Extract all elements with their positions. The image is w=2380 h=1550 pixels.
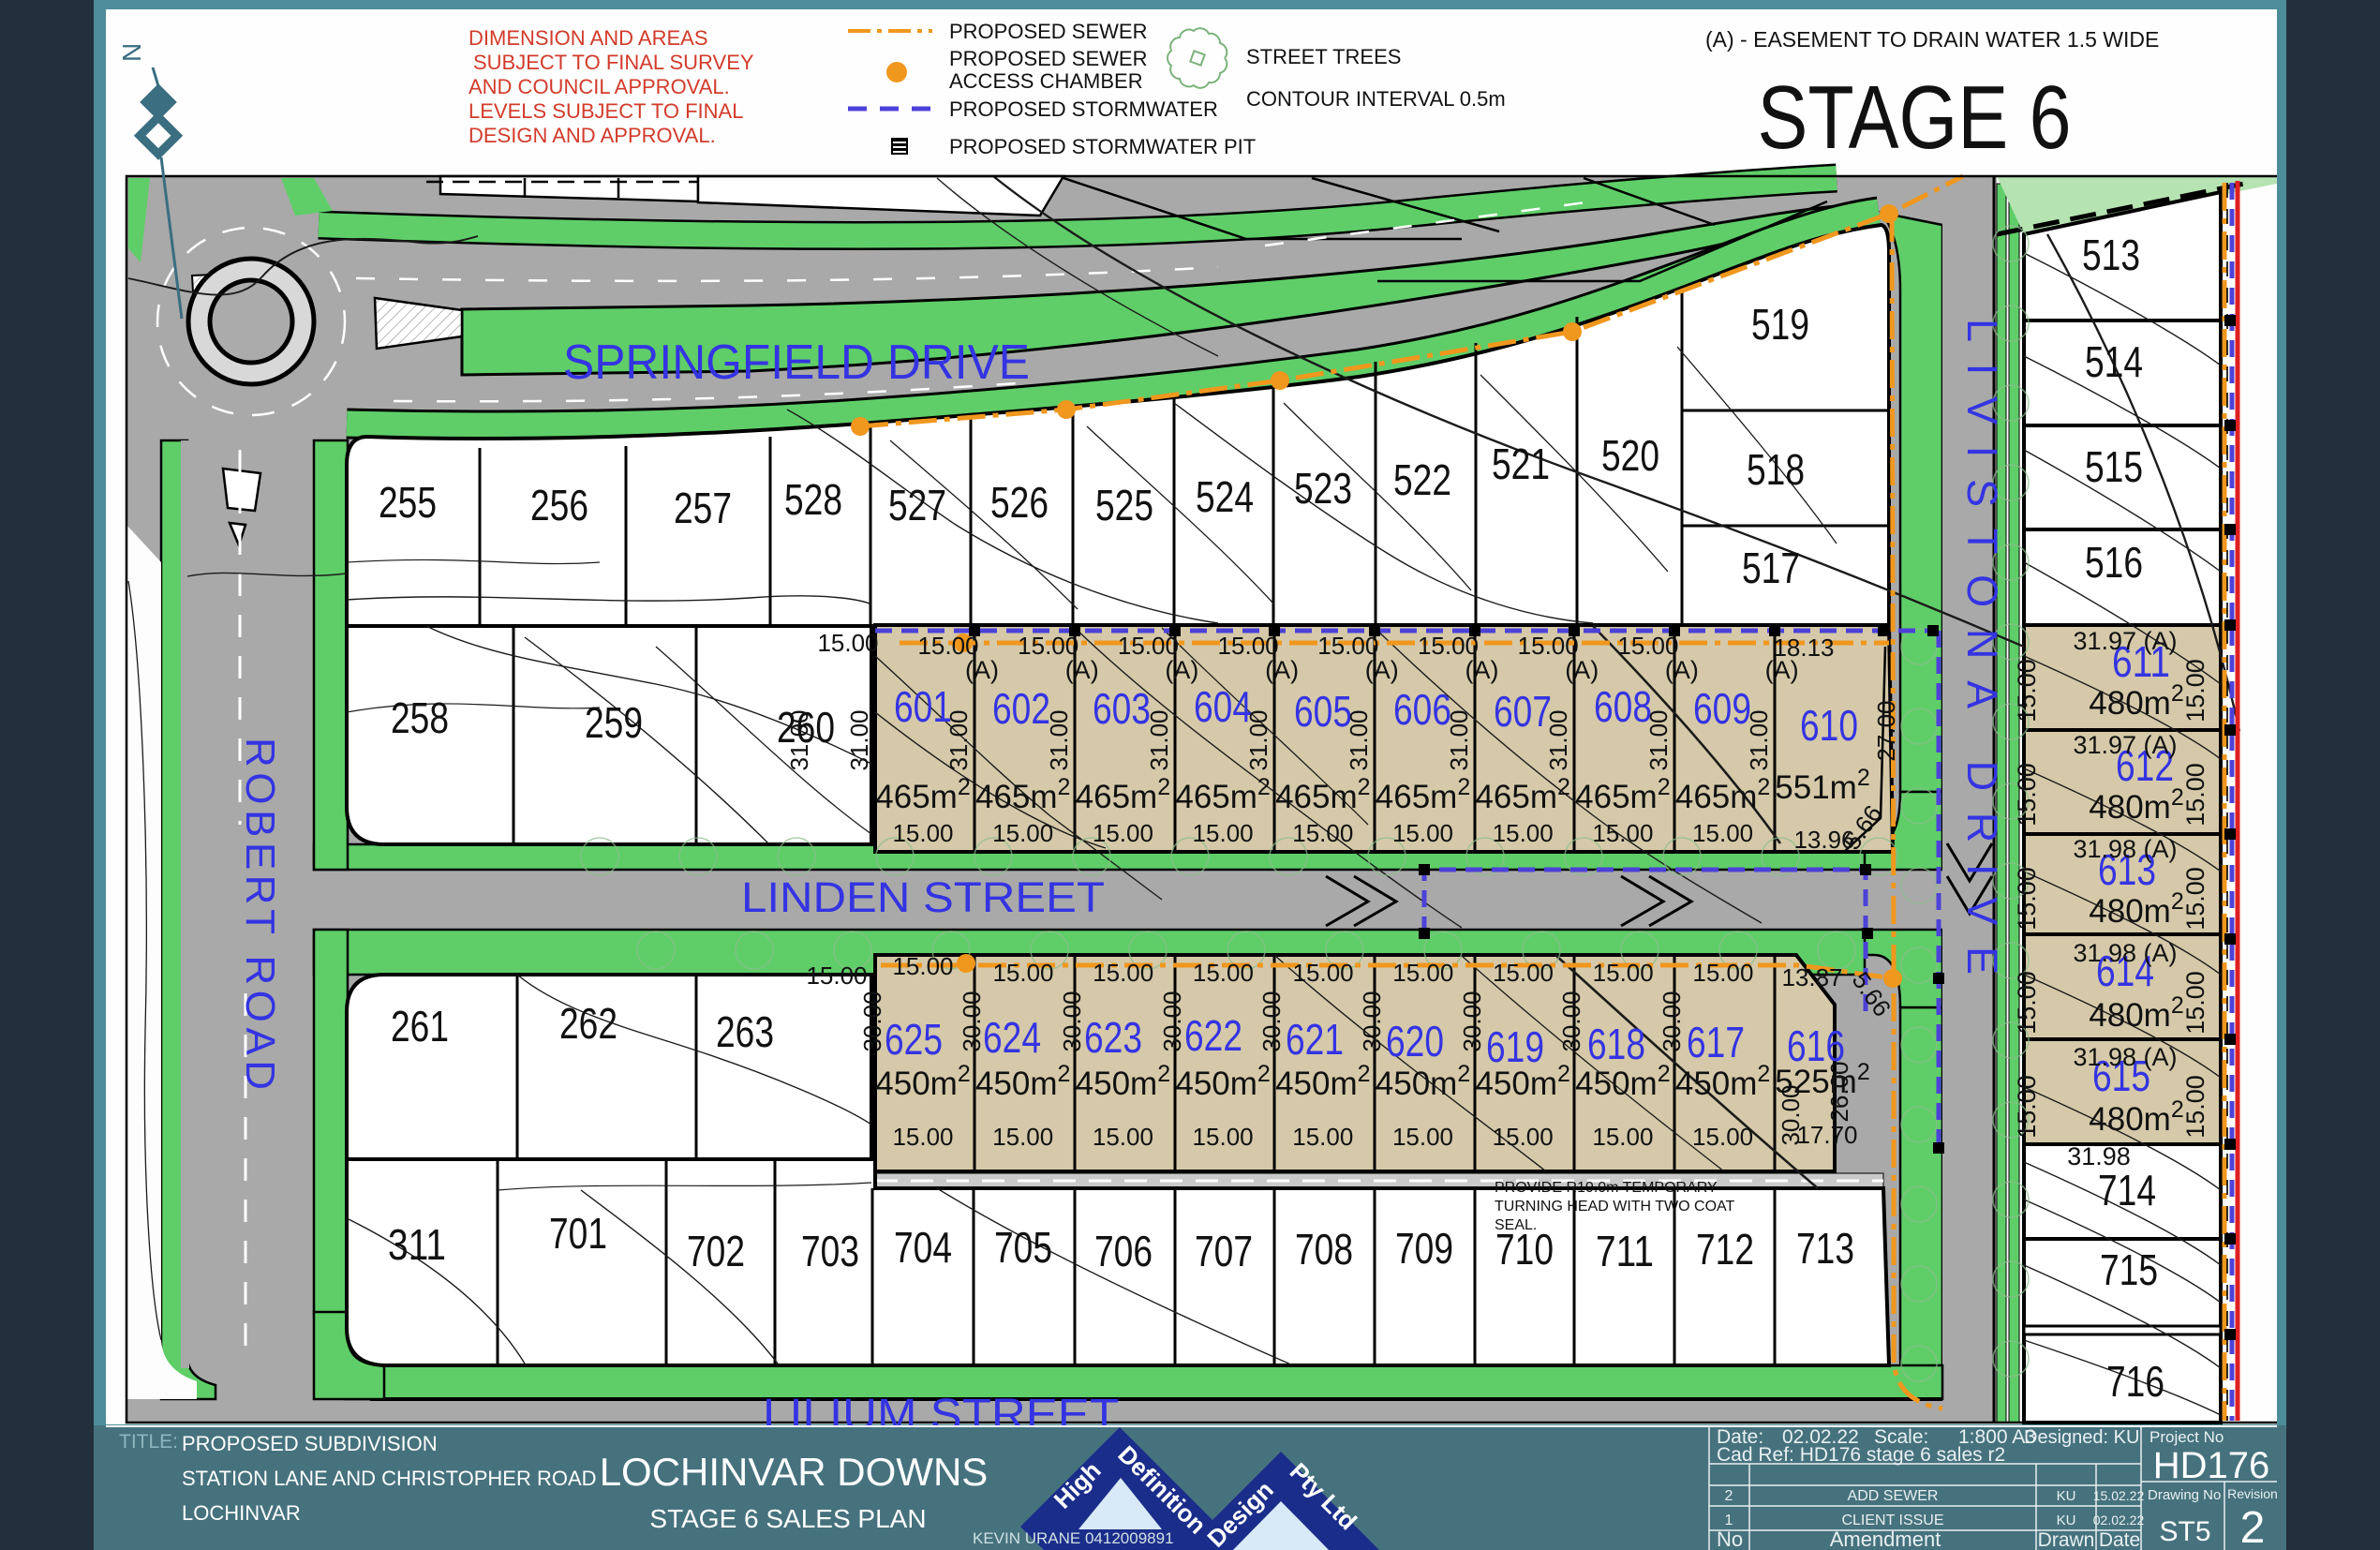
svg-text:480m2: 480m2 (2089, 888, 2183, 930)
svg-text:31.97 (A): 31.97 (A) (2073, 627, 2177, 655)
svg-text:(A): (A) (1465, 656, 1499, 684)
svg-text:311: 311 (388, 1220, 446, 1269)
svg-text:Cad Ref: HD176 stage 6 sales: Cad Ref: HD176 stage 6 sales r2 (1717, 1444, 2005, 1466)
svg-text:AND COUNCIL APPROVAL.: AND COUNCIL APPROVAL. (469, 75, 730, 98)
svg-text:2: 2 (1725, 1488, 1733, 1504)
svg-text:15.00: 15.00 (2181, 763, 2209, 827)
svg-text:30.00: 30.00 (858, 991, 886, 1051)
svg-text:520: 520 (1601, 431, 1659, 480)
svg-text:30.00: 30.00 (1257, 991, 1286, 1051)
svg-text:525: 525 (1095, 481, 1153, 529)
svg-text:LOCHINVAR DOWNS: LOCHINVAR DOWNS (600, 1450, 989, 1494)
svg-text:15.00: 15.00 (1193, 1123, 1254, 1151)
svg-text:450m2: 450m2 (1675, 1061, 1770, 1102)
svg-text:258: 258 (391, 693, 449, 742)
svg-text:712: 712 (1696, 1225, 1754, 1274)
svg-text:HD176: HD176 (2153, 1445, 2270, 1486)
svg-text:450m2: 450m2 (1376, 1061, 1470, 1102)
svg-text:465m2: 465m2 (1575, 774, 1670, 815)
svg-text:450m2: 450m2 (1275, 1061, 1370, 1102)
svg-text:465m2: 465m2 (975, 774, 1070, 815)
svg-text:714: 714 (2098, 1166, 2156, 1215)
svg-text:(A): (A) (1165, 656, 1198, 684)
svg-text:261: 261 (391, 1002, 449, 1051)
svg-text:(A) - EASEMENT TO DRAIN WATER: (A) - EASEMENT TO DRAIN WATER 1.5 WIDE (1705, 27, 2159, 52)
svg-text:13.87: 13.87 (1781, 963, 1842, 991)
svg-text:(A): (A) (1665, 656, 1699, 684)
svg-text:259: 259 (585, 698, 643, 747)
svg-text:15.00: 15.00 (892, 819, 953, 847)
svg-text:DIMENSION AND AREAS: DIMENSION AND AREAS (469, 26, 708, 50)
svg-text:465m2: 465m2 (1175, 774, 1270, 815)
svg-text:465m2: 465m2 (1275, 774, 1370, 815)
svg-text:15.00: 15.00 (1392, 959, 1453, 987)
svg-text:705: 705 (994, 1223, 1052, 1272)
svg-text:450m2: 450m2 (1575, 1061, 1670, 1102)
svg-text:15.00: 15.00 (2181, 971, 2209, 1035)
svg-text:ROBERT ROAD: ROBERT ROAD (237, 738, 283, 1090)
svg-text:619: 619 (1486, 1022, 1544, 1071)
svg-text:15.00: 15.00 (1692, 959, 1753, 987)
svg-text:610: 610 (1800, 701, 1858, 750)
svg-text:15.00: 15.00 (2181, 867, 2209, 931)
svg-text:SUBJECT TO FINAL SURVEY: SUBJECT TO FINAL SURVEY (473, 51, 754, 74)
svg-text:KU: KU (2057, 1488, 2076, 1504)
svg-text:480m2: 480m2 (2089, 680, 2183, 722)
svg-text:602: 602 (992, 684, 1050, 733)
svg-text:15.00: 15.00 (1193, 819, 1254, 847)
svg-text:Drawn: Drawn (2038, 1529, 2095, 1550)
svg-text:621: 621 (1286, 1015, 1344, 1064)
svg-text:255: 255 (379, 478, 437, 527)
svg-text:601: 601 (894, 682, 952, 731)
svg-text:480m2: 480m2 (2089, 1096, 2183, 1138)
svg-text:30.00: 30.00 (1158, 991, 1186, 1051)
svg-text:LEVELS SUBJECT TO FINAL: LEVELS SUBJECT TO FINAL (469, 99, 743, 123)
svg-text:706: 706 (1094, 1227, 1153, 1275)
svg-text:262: 262 (559, 999, 617, 1048)
svg-text:PROVIDE R10.0m TEMPORARY: PROVIDE R10.0m TEMPORARY (1495, 1180, 1718, 1196)
svg-text:465m2: 465m2 (1675, 774, 1770, 815)
svg-text:ADD SEWER: ADD SEWER (1848, 1488, 1939, 1504)
svg-text:30.00: 30.00 (1458, 991, 1486, 1051)
svg-text:263: 263 (716, 1007, 774, 1056)
svg-text:(A): (A) (1565, 656, 1599, 684)
svg-text:519: 519 (1751, 300, 1809, 349)
svg-text:465m2: 465m2 (1475, 774, 1569, 815)
svg-text:31.00: 31.00 (1544, 709, 1572, 770)
svg-text:711: 711 (1596, 1227, 1654, 1275)
svg-text:PROPOSED SEWER: PROPOSED SEWER (949, 47, 1147, 70)
svg-text:620: 620 (1386, 1017, 1444, 1066)
svg-text:704: 704 (894, 1223, 952, 1272)
svg-text:15.00: 15.00 (992, 959, 1053, 987)
svg-text:715: 715 (2100, 1245, 2158, 1294)
svg-text:31.00: 31.00 (1345, 709, 1373, 770)
svg-text:26.00: 26.00 (1825, 1061, 1853, 1122)
svg-text:(A): (A) (1765, 656, 1799, 684)
svg-text:N: N (117, 43, 146, 62)
svg-text:CONTOUR INTERVAL 0.5m: CONTOUR INTERVAL 0.5m (1246, 87, 1506, 111)
svg-text:31.00: 31.00 (845, 709, 873, 770)
svg-text:Designed: KU: Designed: KU (2024, 1427, 2139, 1448)
svg-text:15.02.22: 15.02.22 (2093, 1488, 2145, 1503)
svg-text:701: 701 (549, 1209, 607, 1258)
svg-text:257: 257 (674, 484, 732, 532)
svg-text:STREET TREES: STREET TREES (1246, 45, 1401, 68)
svg-text:606: 606 (1393, 685, 1451, 734)
svg-text:604: 604 (1194, 682, 1252, 731)
svg-text:465m2: 465m2 (1376, 774, 1470, 815)
svg-text:622: 622 (1184, 1011, 1242, 1060)
svg-text:15.00: 15.00 (992, 1123, 1053, 1151)
svg-text:15.00: 15.00 (1692, 1123, 1753, 1151)
svg-text:450m2: 450m2 (1475, 1061, 1569, 1102)
svg-text:617: 617 (1687, 1018, 1745, 1066)
svg-text:31.00: 31.00 (1145, 709, 1173, 770)
svg-text:515: 515 (2085, 442, 2143, 491)
svg-text:526: 526 (990, 478, 1049, 527)
svg-text:518: 518 (1747, 445, 1805, 494)
svg-text:524: 524 (1196, 472, 1254, 521)
svg-text:KEVIN URANE 0412009891: KEVIN URANE 0412009891 (973, 1529, 1174, 1547)
svg-text:15.00: 15.00 (1293, 959, 1354, 987)
svg-text:CLIENT ISSUE: CLIENT ISSUE (1841, 1513, 1943, 1528)
svg-text:716: 716 (2106, 1357, 2164, 1406)
svg-text:PROPOSED SUBDIVISION: PROPOSED SUBDIVISION (182, 1432, 438, 1455)
svg-text:31.98 (A): 31.98 (A) (2073, 939, 2177, 967)
svg-text:LOCHINVAR: LOCHINVAR (182, 1501, 301, 1525)
svg-text:15.00: 15.00 (1392, 1123, 1453, 1151)
svg-text:02.02.22: 02.02.22 (2093, 1513, 2145, 1528)
svg-text:PROPOSED STORMWATER: PROPOSED STORMWATER (949, 97, 1218, 121)
svg-text:15.00: 15.00 (892, 1123, 953, 1151)
svg-text:703: 703 (801, 1227, 859, 1275)
svg-text:30.00: 30.00 (958, 991, 986, 1051)
svg-text:31.00: 31.00 (1644, 709, 1673, 770)
svg-text:Date: Date (2099, 1529, 2140, 1550)
svg-text:ACCESS CHAMBER: ACCESS CHAMBER (949, 69, 1143, 93)
svg-text:ST5: ST5 (2159, 1516, 2210, 1547)
svg-text:618: 618 (1587, 1020, 1645, 1068)
svg-text:15.00: 15.00 (806, 961, 867, 990)
svg-text:15.00: 15.00 (1093, 959, 1153, 987)
svg-text:465m2: 465m2 (1076, 774, 1170, 815)
svg-text:31.98: 31.98 (2067, 1142, 2131, 1170)
svg-text:Revision: Revision (2227, 1486, 2278, 1501)
svg-text:31.00: 31.00 (945, 709, 973, 770)
svg-text:31.97 (A): 31.97 (A) (2073, 731, 2177, 759)
svg-text:608: 608 (1594, 682, 1652, 731)
svg-text:15.00: 15.00 (1493, 819, 1554, 847)
svg-text:708: 708 (1295, 1225, 1353, 1274)
svg-text:31.00: 31.00 (785, 709, 813, 770)
svg-text:DESIGN AND APPROVAL.: DESIGN AND APPROVAL. (469, 124, 716, 147)
svg-text:31.98 (A): 31.98 (A) (2073, 1043, 2177, 1071)
svg-text:523: 523 (1294, 464, 1352, 513)
svg-text:15.00: 15.00 (2013, 971, 2041, 1035)
svg-text:15.00: 15.00 (1493, 959, 1554, 987)
svg-text:514: 514 (2085, 337, 2143, 386)
svg-text:31.98 (A): 31.98 (A) (2073, 835, 2177, 863)
svg-text:SEAL.: SEAL. (1495, 1217, 1537, 1233)
svg-text:TURNING HEAD WITH TWO COAT: TURNING HEAD WITH TWO COAT (1495, 1199, 1735, 1215)
svg-text:15.00: 15.00 (1093, 1123, 1153, 1151)
svg-text:15.00: 15.00 (2013, 763, 2041, 827)
svg-text:15.00: 15.00 (1093, 819, 1153, 847)
svg-text:480m2: 480m2 (2089, 784, 2183, 826)
svg-text:15.00: 15.00 (2181, 1075, 2209, 1139)
svg-text:15.00: 15.00 (1592, 1123, 1653, 1151)
svg-text:517: 517 (1742, 544, 1800, 592)
svg-text:15.00: 15.00 (1692, 819, 1753, 847)
svg-text:LINDEN STREET: LINDEN STREET (741, 873, 1105, 921)
svg-text:STATION LANE AND CHRISTOPHER R: STATION LANE AND CHRISTOPHER ROAD (182, 1467, 597, 1490)
svg-text:450m2: 450m2 (975, 1061, 1070, 1102)
svg-text:31.00: 31.00 (1745, 709, 1773, 770)
svg-text:450m2: 450m2 (1175, 1061, 1270, 1102)
svg-text:(A): (A) (1265, 656, 1299, 684)
svg-text:30.00: 30.00 (1557, 991, 1585, 1051)
svg-text:PROPOSED SEWER: PROPOSED SEWER (949, 20, 1147, 43)
svg-text:KU: KU (2057, 1513, 2076, 1528)
svg-text:605: 605 (1294, 687, 1352, 736)
svg-text:15.00: 15.00 (2181, 659, 2209, 723)
svg-text:15.00: 15.00 (817, 629, 878, 657)
svg-text:713: 713 (1796, 1224, 1854, 1273)
svg-text:256: 256 (530, 481, 588, 529)
svg-text:31.00: 31.00 (1244, 709, 1272, 770)
svg-text:465m2: 465m2 (875, 774, 970, 815)
svg-text:15.00: 15.00 (2013, 659, 2041, 723)
svg-text:15.00: 15.00 (892, 952, 953, 980)
svg-text:15.00: 15.00 (2013, 1075, 2041, 1139)
svg-text:450m2: 450m2 (1076, 1061, 1170, 1102)
svg-text:528: 528 (784, 475, 842, 524)
svg-text:STAGE 6 SALES PLAN: STAGE 6 SALES PLAN (649, 1504, 926, 1533)
svg-text:31.00: 31.00 (1445, 709, 1473, 770)
svg-text:15.00: 15.00 (2013, 867, 2041, 931)
svg-text:30.00: 30.00 (1358, 991, 1386, 1051)
svg-text:30.00: 30.00 (1658, 991, 1686, 1051)
svg-text:Amendment: Amendment (1830, 1528, 1941, 1550)
svg-text:521: 521 (1492, 440, 1550, 488)
svg-text:702: 702 (687, 1227, 745, 1275)
svg-text:522: 522 (1393, 455, 1451, 504)
svg-text:Drawing No: Drawing No (2148, 1487, 2221, 1503)
svg-text:625: 625 (885, 1015, 943, 1064)
svg-text:(A): (A) (1365, 656, 1399, 684)
svg-text:(A): (A) (965, 656, 999, 684)
svg-text:Project No: Project No (2149, 1428, 2224, 1446)
svg-text:607: 607 (1494, 687, 1552, 736)
svg-text:STAGE 6: STAGE 6 (1758, 67, 2072, 168)
svg-text:TITLE:: TITLE: (119, 1431, 178, 1453)
svg-text:15.00: 15.00 (992, 819, 1053, 847)
svg-text:624: 624 (983, 1013, 1041, 1062)
svg-text:707: 707 (1195, 1227, 1253, 1275)
svg-text:551m2: 551m2 (1775, 765, 1869, 806)
svg-text:15.00: 15.00 (1592, 819, 1653, 847)
svg-text:PROPOSED STORMWATER PIT: PROPOSED STORMWATER PIT (949, 135, 1256, 158)
svg-text:SPRINGFIELD DRIVE: SPRINGFIELD DRIVE (563, 335, 1030, 390)
svg-text:709: 709 (1395, 1224, 1453, 1273)
svg-text:1: 1 (1725, 1513, 1733, 1528)
svg-text:No: No (1717, 1528, 1743, 1550)
svg-text:15.00: 15.00 (1593, 959, 1654, 987)
svg-text:15.00: 15.00 (1193, 959, 1254, 987)
svg-text:17.70: 17.70 (1796, 1121, 1857, 1149)
svg-text:(A): (A) (1065, 656, 1099, 684)
svg-text:480m2: 480m2 (2089, 992, 2183, 1034)
svg-text:513: 513 (2082, 231, 2140, 279)
svg-text:2: 2 (2240, 1503, 2266, 1550)
svg-text:15.00: 15.00 (1493, 1123, 1554, 1151)
svg-text:450m2: 450m2 (875, 1061, 970, 1102)
svg-text:27.00: 27.00 (1872, 700, 1900, 761)
svg-text:15.00: 15.00 (1292, 819, 1353, 847)
svg-text:527: 527 (888, 481, 946, 529)
svg-text:609: 609 (1693, 684, 1751, 733)
svg-text:15.00: 15.00 (1292, 1123, 1353, 1151)
svg-text:516: 516 (2085, 538, 2143, 587)
svg-text:30.00: 30.00 (1777, 1084, 1805, 1145)
svg-text:30.00: 30.00 (1058, 991, 1086, 1051)
svg-text:623: 623 (1084, 1013, 1142, 1062)
svg-text:603: 603 (1093, 684, 1151, 733)
svg-text:31.00: 31.00 (1045, 709, 1073, 770)
svg-text:15.00: 15.00 (1392, 819, 1453, 847)
